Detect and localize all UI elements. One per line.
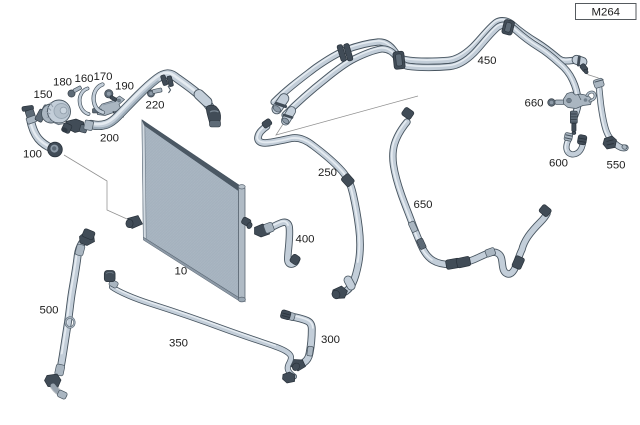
svg-text:500: 500 (40, 305, 59, 317)
svg-text:200: 200 (100, 132, 119, 144)
svg-text:170: 170 (94, 71, 113, 83)
svg-text:M264: M264 (592, 7, 621, 19)
svg-text:250: 250 (318, 167, 337, 179)
svg-text:150: 150 (34, 89, 53, 101)
svg-text:600: 600 (549, 158, 568, 170)
svg-text:160: 160 (75, 73, 94, 85)
svg-text:650: 650 (414, 199, 433, 211)
svg-text:550: 550 (607, 160, 626, 172)
svg-text:180: 180 (53, 77, 72, 89)
svg-text:660: 660 (525, 98, 544, 110)
svg-text:100: 100 (23, 149, 42, 161)
svg-text:190: 190 (115, 81, 134, 93)
svg-text:450: 450 (478, 55, 497, 67)
svg-text:400: 400 (296, 234, 315, 246)
svg-text:220: 220 (146, 100, 165, 112)
svg-text:350: 350 (169, 338, 188, 350)
svg-text:300: 300 (321, 334, 340, 346)
svg-text:10: 10 (175, 266, 188, 278)
